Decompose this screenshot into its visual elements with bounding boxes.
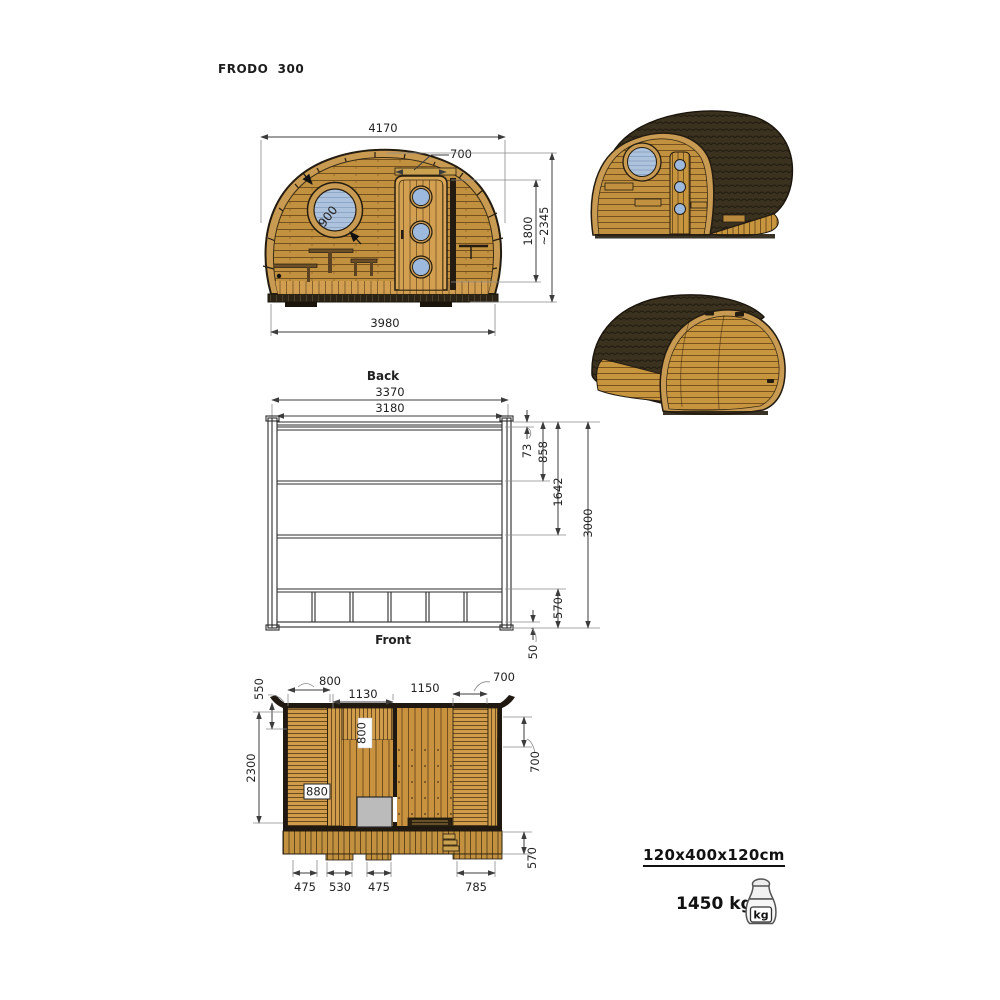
dim-right-stack: 73 858 1642 3000 570 50	[505, 410, 600, 659]
dim-label-2300: 2300	[244, 753, 258, 782]
dim-label-2345: ~2345	[537, 207, 551, 246]
dim-label-858: 858	[536, 441, 550, 463]
base-band	[268, 294, 498, 302]
dim-label-1130: 1130	[348, 687, 377, 701]
divider-wall	[393, 703, 397, 797]
terrace-deck	[283, 831, 502, 854]
front-section-view: 4170 900	[235, 118, 565, 348]
dim-right-570: 570	[503, 832, 539, 869]
roof-latch	[735, 312, 744, 317]
dim-inner-800: 800	[355, 718, 373, 748]
stool-bench	[351, 259, 377, 263]
dim-3980: 3980	[271, 304, 495, 336]
dim-label-top-700: 700	[493, 670, 515, 684]
dim-bottom-row: 475 530 475 785	[293, 860, 495, 894]
door-handle	[401, 230, 404, 239]
stove	[357, 797, 392, 827]
dim-label-475b: 475	[368, 880, 390, 894]
label-back: Back	[367, 369, 400, 383]
perspective-back-view	[585, 278, 805, 428]
round-window-glass	[628, 148, 657, 177]
dim-label-right-700: 700	[528, 751, 542, 773]
room-table	[408, 818, 452, 827]
weight-icon-unit: kg	[753, 909, 768, 922]
room-bench-edge	[488, 708, 498, 826]
dim-label-475a: 475	[294, 880, 316, 894]
terrace-step	[366, 854, 391, 860]
stove-knob	[277, 274, 281, 278]
terrace-step	[326, 854, 353, 860]
stool-leg	[354, 262, 357, 276]
front-bench	[691, 202, 707, 208]
roof-latch	[705, 311, 714, 316]
page-title: FRODO 300	[218, 62, 304, 76]
dim-label-top-800: 800	[319, 674, 341, 688]
dim-label-1642: 1642	[551, 477, 565, 506]
dim-3180: 3180	[277, 401, 503, 416]
floor-strip	[270, 281, 492, 294]
dim-top-1150: 1150	[410, 681, 439, 695]
base-shadow	[663, 411, 768, 415]
dim-label-530: 530	[329, 880, 351, 894]
latch	[767, 379, 774, 383]
dim-right-700: 700	[503, 717, 542, 773]
dim-label-700-door: 700	[450, 147, 472, 161]
dim-label-785: 785	[465, 880, 487, 894]
terrace	[283, 831, 502, 860]
terrace-step-right	[453, 854, 502, 859]
dim-label-3000: 3000	[581, 508, 595, 537]
front-bench	[605, 183, 633, 190]
porthole-middle	[410, 221, 432, 243]
dim-label-73: 73	[520, 444, 534, 459]
skid-left	[285, 302, 317, 307]
stair	[443, 834, 455, 839]
room-floor-screws	[397, 738, 453, 826]
porthole	[675, 160, 686, 171]
dim-label-inner-800: 800	[355, 722, 369, 744]
drawing-sheet: FRODO 300	[0, 0, 1000, 1000]
table-top	[309, 249, 353, 253]
dark-post	[450, 178, 456, 290]
perspective-front-view	[585, 103, 805, 253]
dim-label-3370: 3370	[375, 385, 404, 399]
label-front: Front	[375, 633, 411, 647]
porthole	[675, 182, 686, 193]
base-frame-view: Back 3370 3180	[250, 360, 610, 660]
table-leg	[328, 252, 332, 273]
dim-label-inner-880: 880	[306, 785, 328, 799]
sauna-bench-edge	[328, 708, 343, 826]
dim-label-right-570: 570	[525, 847, 539, 869]
side-bench	[723, 215, 745, 222]
dim-label-3980: 3980	[370, 316, 399, 330]
stair	[443, 846, 459, 851]
front-bench	[635, 199, 661, 206]
dim-label-550: 550	[252, 678, 266, 700]
stool-leg	[370, 262, 373, 276]
dim-label-3180: 3180	[375, 401, 404, 415]
bench-leg	[307, 267, 310, 282]
changing-room	[397, 708, 498, 827]
sauna-room: 800 880	[288, 708, 394, 827]
porthole-top	[410, 186, 432, 208]
dim-label-1800: 1800	[521, 216, 535, 245]
dim-label-1150: 1150	[410, 681, 439, 695]
door-lintel	[395, 168, 456, 175]
dim-label-4170: 4170	[368, 121, 397, 135]
footprint-size: 120x400x120cm	[643, 846, 785, 867]
porthole	[675, 204, 686, 215]
dim-label-570: 570	[551, 597, 565, 619]
door	[395, 168, 456, 290]
floor-plan-view: 800 880	[240, 650, 570, 920]
stair	[443, 840, 457, 845]
skid-right	[420, 302, 452, 307]
weight-icon: kg	[742, 876, 780, 928]
base-shadow	[595, 234, 775, 239]
dim-inner-880: 880	[304, 784, 330, 799]
frame-structure	[266, 416, 513, 630]
door-3d	[670, 152, 690, 234]
sauna-bench-left	[288, 708, 328, 826]
porthole-bottom	[410, 256, 432, 278]
room-bench-right	[453, 708, 488, 826]
